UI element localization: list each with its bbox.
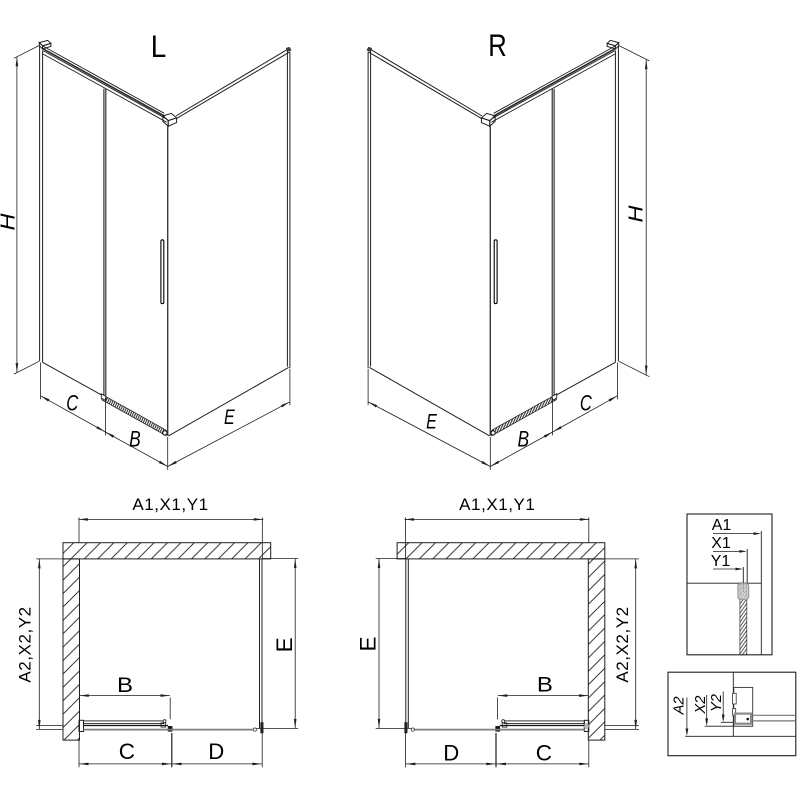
svg-text:A2: A2 [670,696,687,716]
svg-text:Y2: Y2 [708,693,725,712]
svg-text:H: H [0,213,20,231]
svg-text:B: B [117,673,133,697]
svg-text:D: D [443,741,459,766]
svg-text:A1,X1,Y1: A1,X1,Y1 [132,495,208,514]
svg-text:C: C [66,390,78,415]
svg-text:E: E [224,406,235,429]
svg-text:C: C [580,390,592,415]
svg-text:Y1: Y1 [711,553,731,570]
svg-text:A1: A1 [712,517,732,534]
svg-text:B: B [518,426,530,451]
svg-text:X1: X1 [711,535,731,552]
svg-text:A1,X1,Y1: A1,X1,Y1 [459,495,535,514]
svg-text:H: H [625,205,647,223]
svg-text:R: R [488,27,507,63]
svg-text:B: B [537,672,553,696]
svg-text:A2,X2,Y2: A2,X2,Y2 [613,606,632,682]
svg-text:B: B [129,426,141,451]
svg-text:E: E [426,411,437,434]
svg-text:E: E [272,637,297,652]
svg-text:A2,X2,Y2: A2,X2,Y2 [16,606,35,682]
svg-text:C: C [119,739,135,764]
svg-text:E: E [355,636,380,651]
svg-text:L: L [151,28,167,64]
svg-text:C: C [536,740,552,765]
svg-text:D: D [208,739,224,764]
